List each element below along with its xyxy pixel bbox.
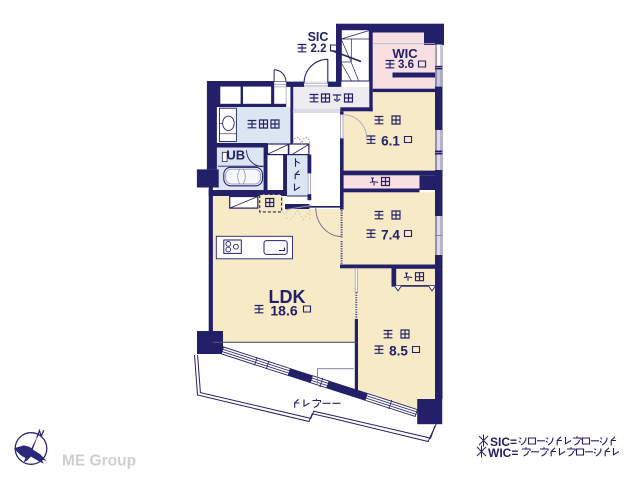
svg-text:7.4: 7.4 — [381, 228, 400, 243]
svg-text:2.2: 2.2 — [311, 43, 327, 55]
svg-text:8.5: 8.5 — [389, 344, 408, 359]
svg-text:SIC: SIC — [308, 30, 329, 44]
svg-text:6.1: 6.1 — [381, 134, 400, 149]
svg-text:ME Group: ME Group — [62, 453, 136, 470]
svg-text:WIC=: WIC= — [488, 446, 518, 460]
svg-text:3.6: 3.6 — [398, 59, 414, 71]
svg-text:18.6: 18.6 — [270, 303, 297, 319]
svg-text:UB: UB — [226, 148, 245, 163]
